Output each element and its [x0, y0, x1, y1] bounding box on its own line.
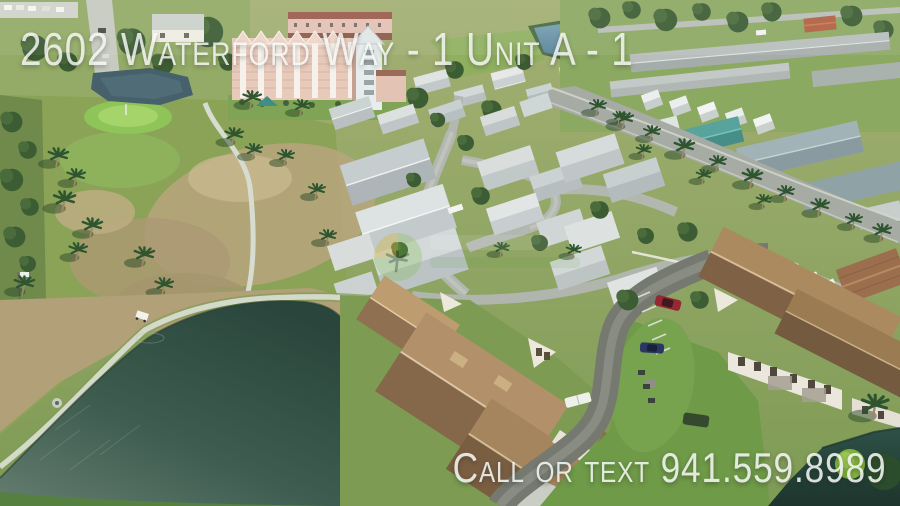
watermark-subtext-smudge — [430, 257, 580, 268]
address-watermark-text: 2602 Waterford Way - 1 Unit A - 1 — [20, 22, 634, 76]
contact-watermark-text: Call or text 941.559.8989 — [452, 444, 886, 492]
watermark-text-smudge — [430, 235, 550, 250]
sun-mark — [374, 233, 398, 257]
blue-car — [640, 342, 665, 354]
lanai-screen — [768, 376, 792, 390]
watermark-logo — [372, 226, 582, 288]
listing-photo: 2602 Waterford Way - 1 Unit A - 1 Call o… — [0, 0, 900, 506]
